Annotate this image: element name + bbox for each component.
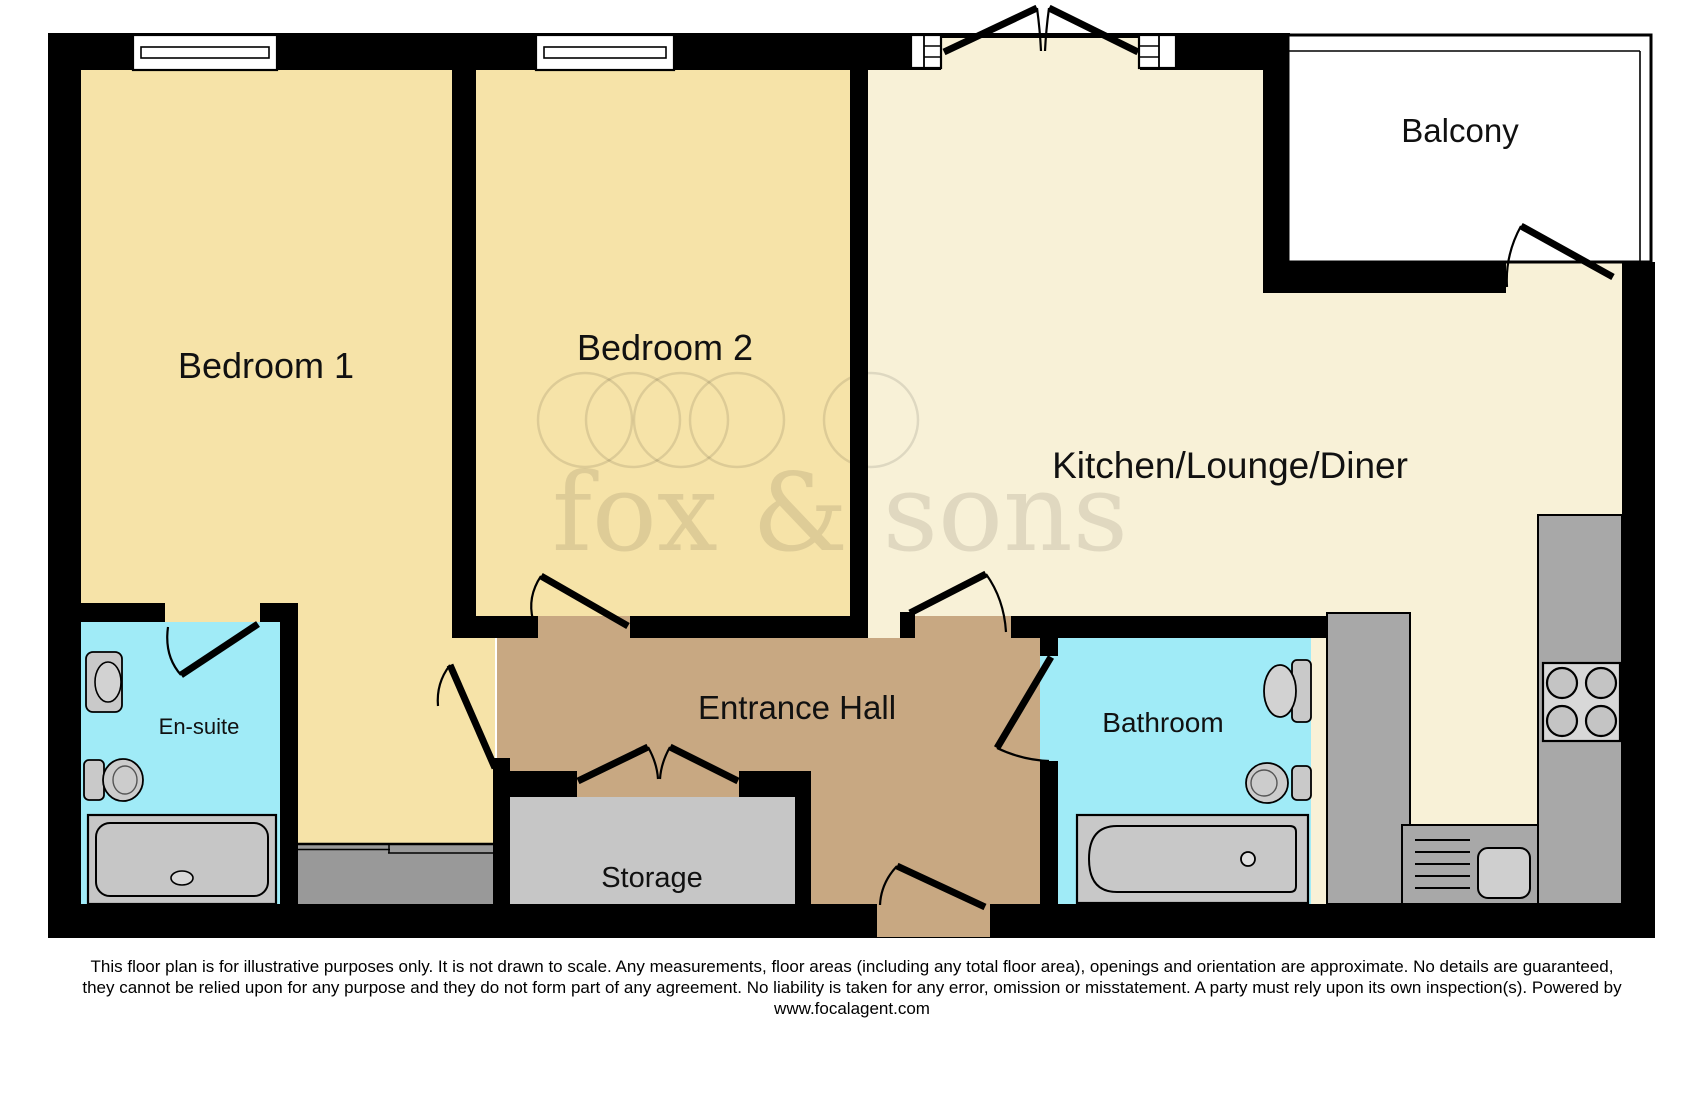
wall-bathroom-top [1011,616,1327,638]
wall-storage-right [795,771,811,904]
wall-storage-top-left [510,771,577,797]
balcony-door-recess [1506,262,1622,294]
bathtub [1077,815,1308,903]
hob [1543,663,1620,741]
kitchen-hall-threshold [915,616,1011,638]
bath-drain [1241,852,1255,866]
wall-bedroom1-bedroom2 [452,70,476,638]
label-bedroom1: Bedroom 1 [178,345,354,386]
floorplan-page: fox & sons [0,0,1704,1112]
floorplan-drawing: fox & sons [0,0,1704,1112]
wall-hall-kitchen-stub [900,612,915,638]
label-hall: Entrance Hall [698,689,896,726]
shower-tray [88,815,276,904]
wardrobe-floor [298,843,493,904]
wall-ensuite-right [280,603,298,904]
counter-middle [1327,613,1410,904]
ensuite-toilet [84,759,143,801]
ensuite-sink [86,652,122,712]
wall-balcony-bottom [1263,262,1506,293]
wall-bathroom-left-upper [1040,638,1058,656]
wall-bathroom-left-lower [1040,761,1058,904]
hob-ring [1586,706,1616,736]
hob-ring [1547,706,1577,736]
wall-bedroom2-bottom-right [630,616,868,638]
disclaimer-line3: www.focalagent.com [0,998,1704,1019]
patio-door-frame-right [1139,35,1176,68]
hob-ring [1547,668,1577,698]
bedroom1-window [133,35,277,70]
label-ensuite: En-suite [159,714,240,739]
entrance-door-recess [877,904,990,937]
hob-ring [1586,668,1616,698]
label-bedroom2: Bedroom 2 [577,327,753,368]
wall-ensuite-top-left [75,603,165,622]
wall-left [48,33,81,938]
wall-balcony-left [1263,33,1290,293]
label-bathroom: Bathroom [1102,707,1223,738]
bathroom-sink [1264,660,1311,722]
wall-bedroom2-bottom-left [452,616,538,638]
disclaimer-line2: they cannot be relied upon for any purpo… [0,977,1704,998]
wall-bottom [48,904,1655,938]
label-storage: Storage [601,862,703,894]
wall-nook-stub [493,758,510,904]
wall-right [1622,262,1655,938]
bathroom-toilet [1246,763,1311,803]
patio-door-frame-left [911,35,941,68]
disclaimer-line1: This floor plan is for illustrative purp… [0,956,1704,977]
disclaimer: This floor plan is for illustrative purp… [0,956,1704,1019]
watermark-text: fox & sons [552,451,1128,576]
bedroom1-nook-floor [452,638,495,843]
bedroom2-window [536,35,674,70]
label-kitchen: Kitchen/Lounge/Diner [1052,445,1408,486]
label-balcony: Balcony [1401,112,1519,149]
